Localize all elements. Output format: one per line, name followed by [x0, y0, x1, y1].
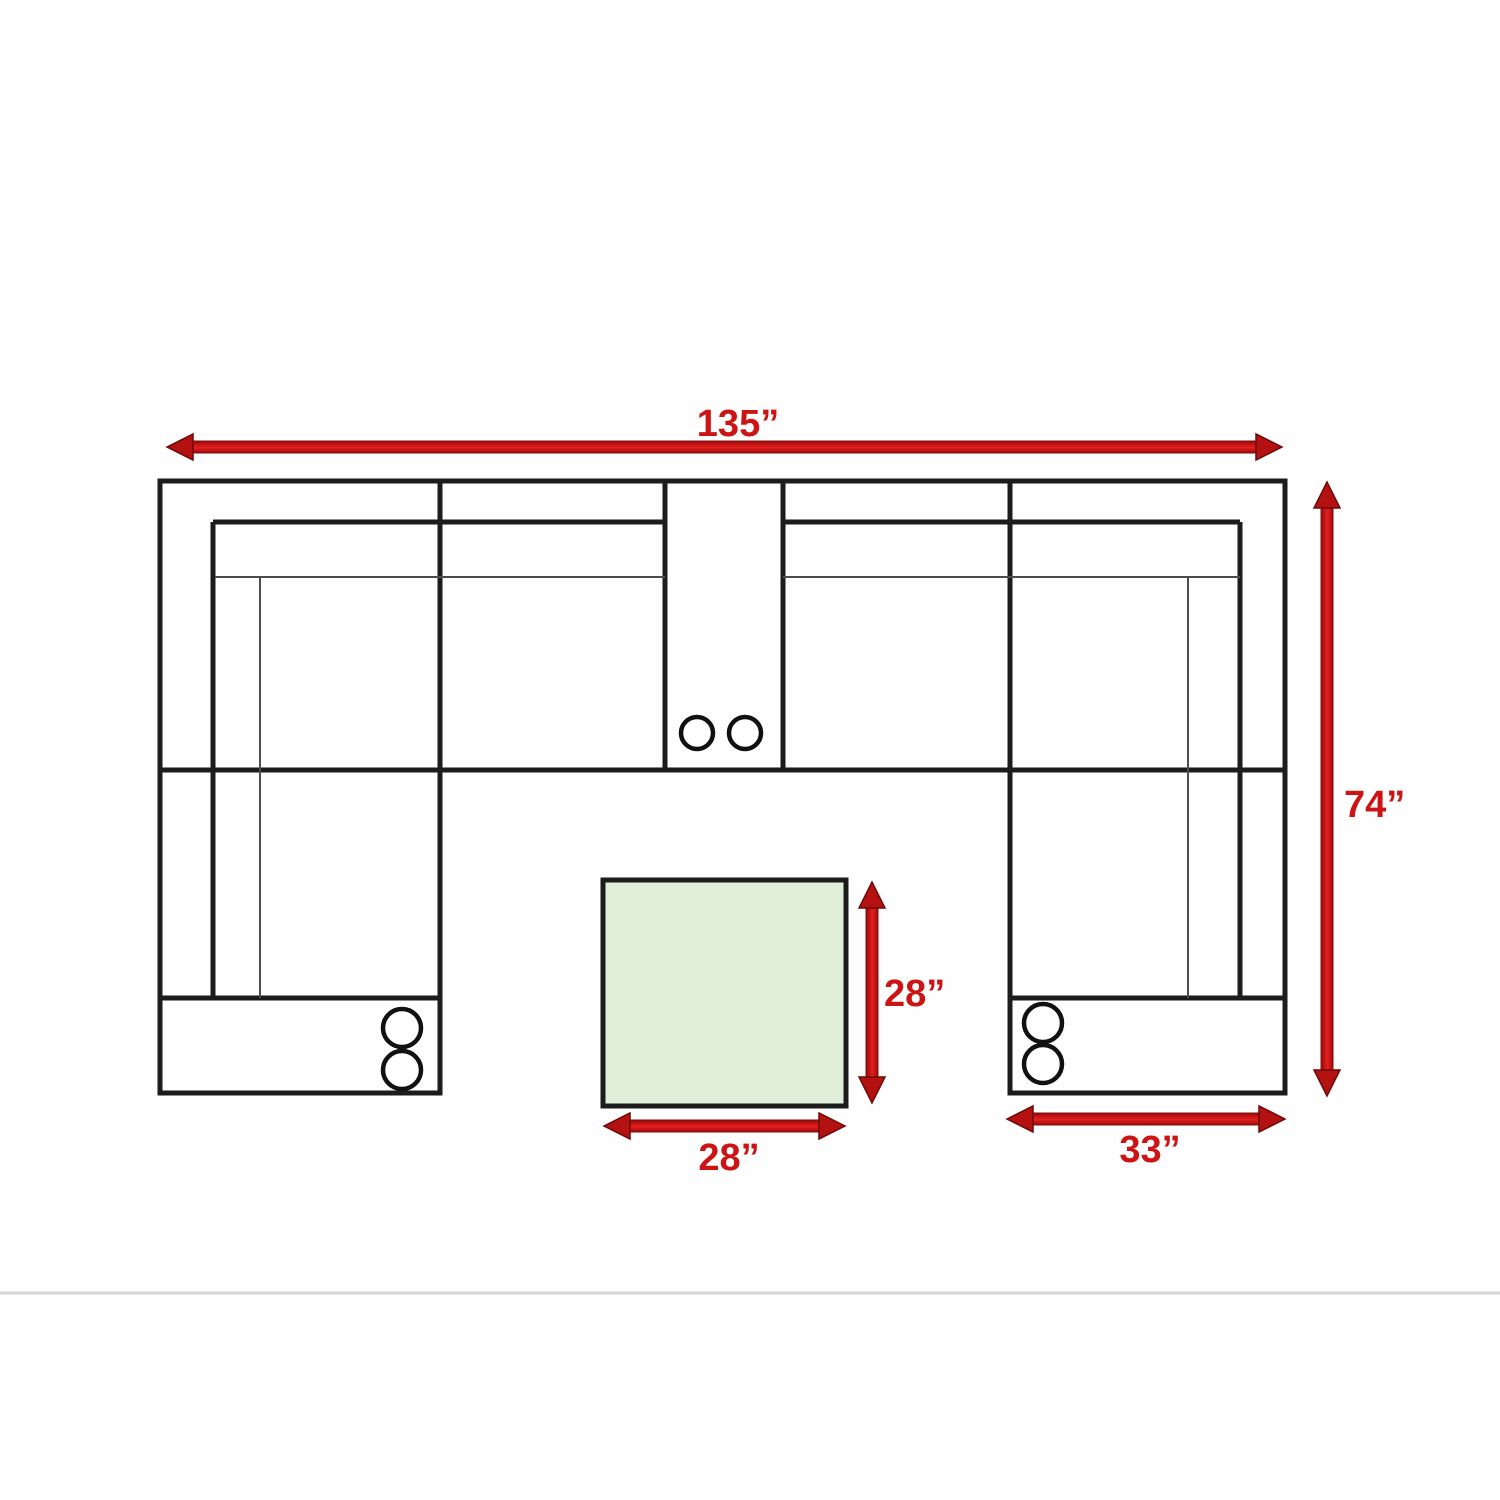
arrow-head-right-icon	[1256, 434, 1282, 460]
furniture-dimension-diagram: 135” 74” 28” 28” 33”	[0, 0, 1500, 1500]
arrow-head-left-icon	[167, 434, 193, 460]
right-chaise-cupholder-icon	[1024, 1004, 1062, 1042]
dimension-arrow-ottoman-depth: 28”	[859, 882, 945, 1103]
dimension-arrow-chaise-width: 33”	[1007, 1106, 1285, 1171]
arrow-shaft	[1031, 1113, 1261, 1126]
label-total-depth: 74”	[1344, 784, 1405, 826]
dimension-arrow-ottoman-width: 28”	[604, 1113, 845, 1179]
arrow-head-left-icon	[1007, 1106, 1033, 1132]
dimension-arrow-total-width: 135”	[167, 403, 1282, 460]
console-cupholder-icon	[681, 717, 713, 749]
arrow-head-left-icon	[604, 1113, 630, 1139]
right-chaise-cupholder-icon	[1024, 1045, 1062, 1083]
arrow-head-up-icon	[1314, 482, 1340, 508]
label-chaise-width: 33”	[1119, 1129, 1180, 1171]
arrow-head-down-icon	[859, 1077, 885, 1103]
left-chaise-cupholder-icon	[383, 1009, 421, 1047]
arrow-shaft	[866, 906, 879, 1079]
arrow-head-right-icon	[819, 1113, 845, 1139]
sofa-floor-plan-svg: 135” 74” 28” 28” 33”	[0, 0, 1500, 1500]
arrow-head-up-icon	[859, 882, 885, 908]
console-cupholder-icon	[729, 717, 761, 749]
arrow-shaft	[628, 1120, 821, 1133]
arrow-head-down-icon	[1314, 1070, 1340, 1096]
dimension-arrow-total-depth: 74”	[1314, 482, 1405, 1096]
label-ottoman-depth: 28”	[884, 973, 945, 1015]
label-ottoman-width: 28”	[698, 1137, 759, 1179]
ottoman	[603, 880, 846, 1106]
left-chaise-cupholder-icon	[383, 1051, 421, 1089]
arrow-shaft	[1321, 506, 1334, 1072]
arrow-head-right-icon	[1259, 1106, 1285, 1132]
label-total-width: 135”	[697, 403, 779, 445]
